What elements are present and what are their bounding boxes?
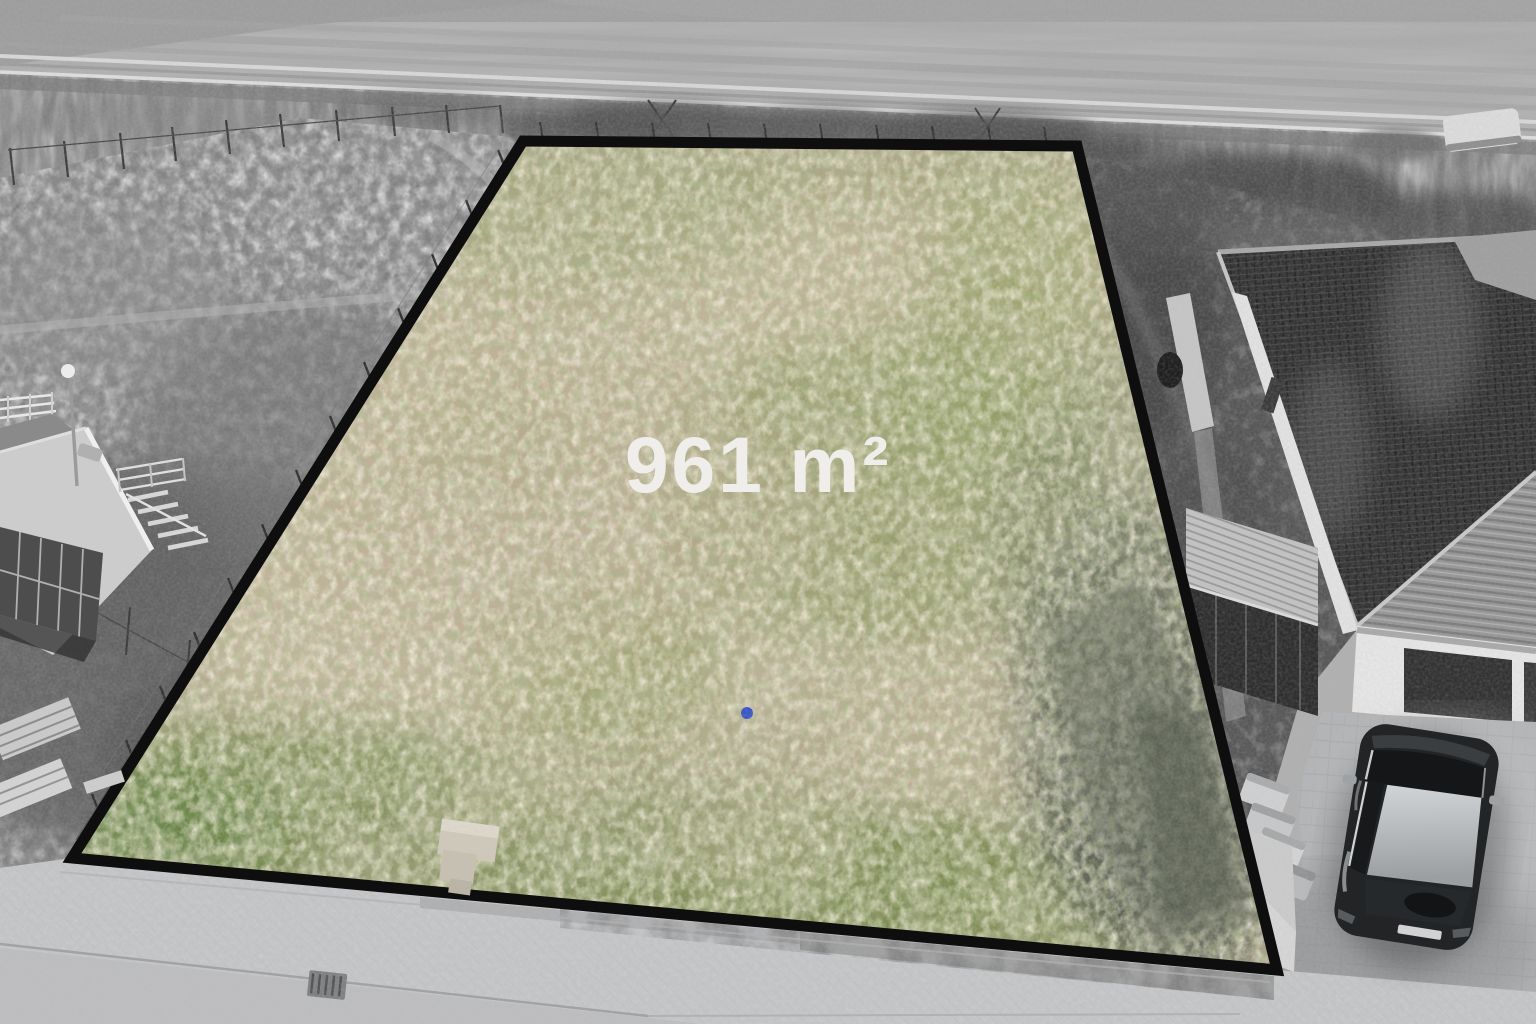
svg-text:961 m²: 961 m²	[625, 420, 892, 509]
